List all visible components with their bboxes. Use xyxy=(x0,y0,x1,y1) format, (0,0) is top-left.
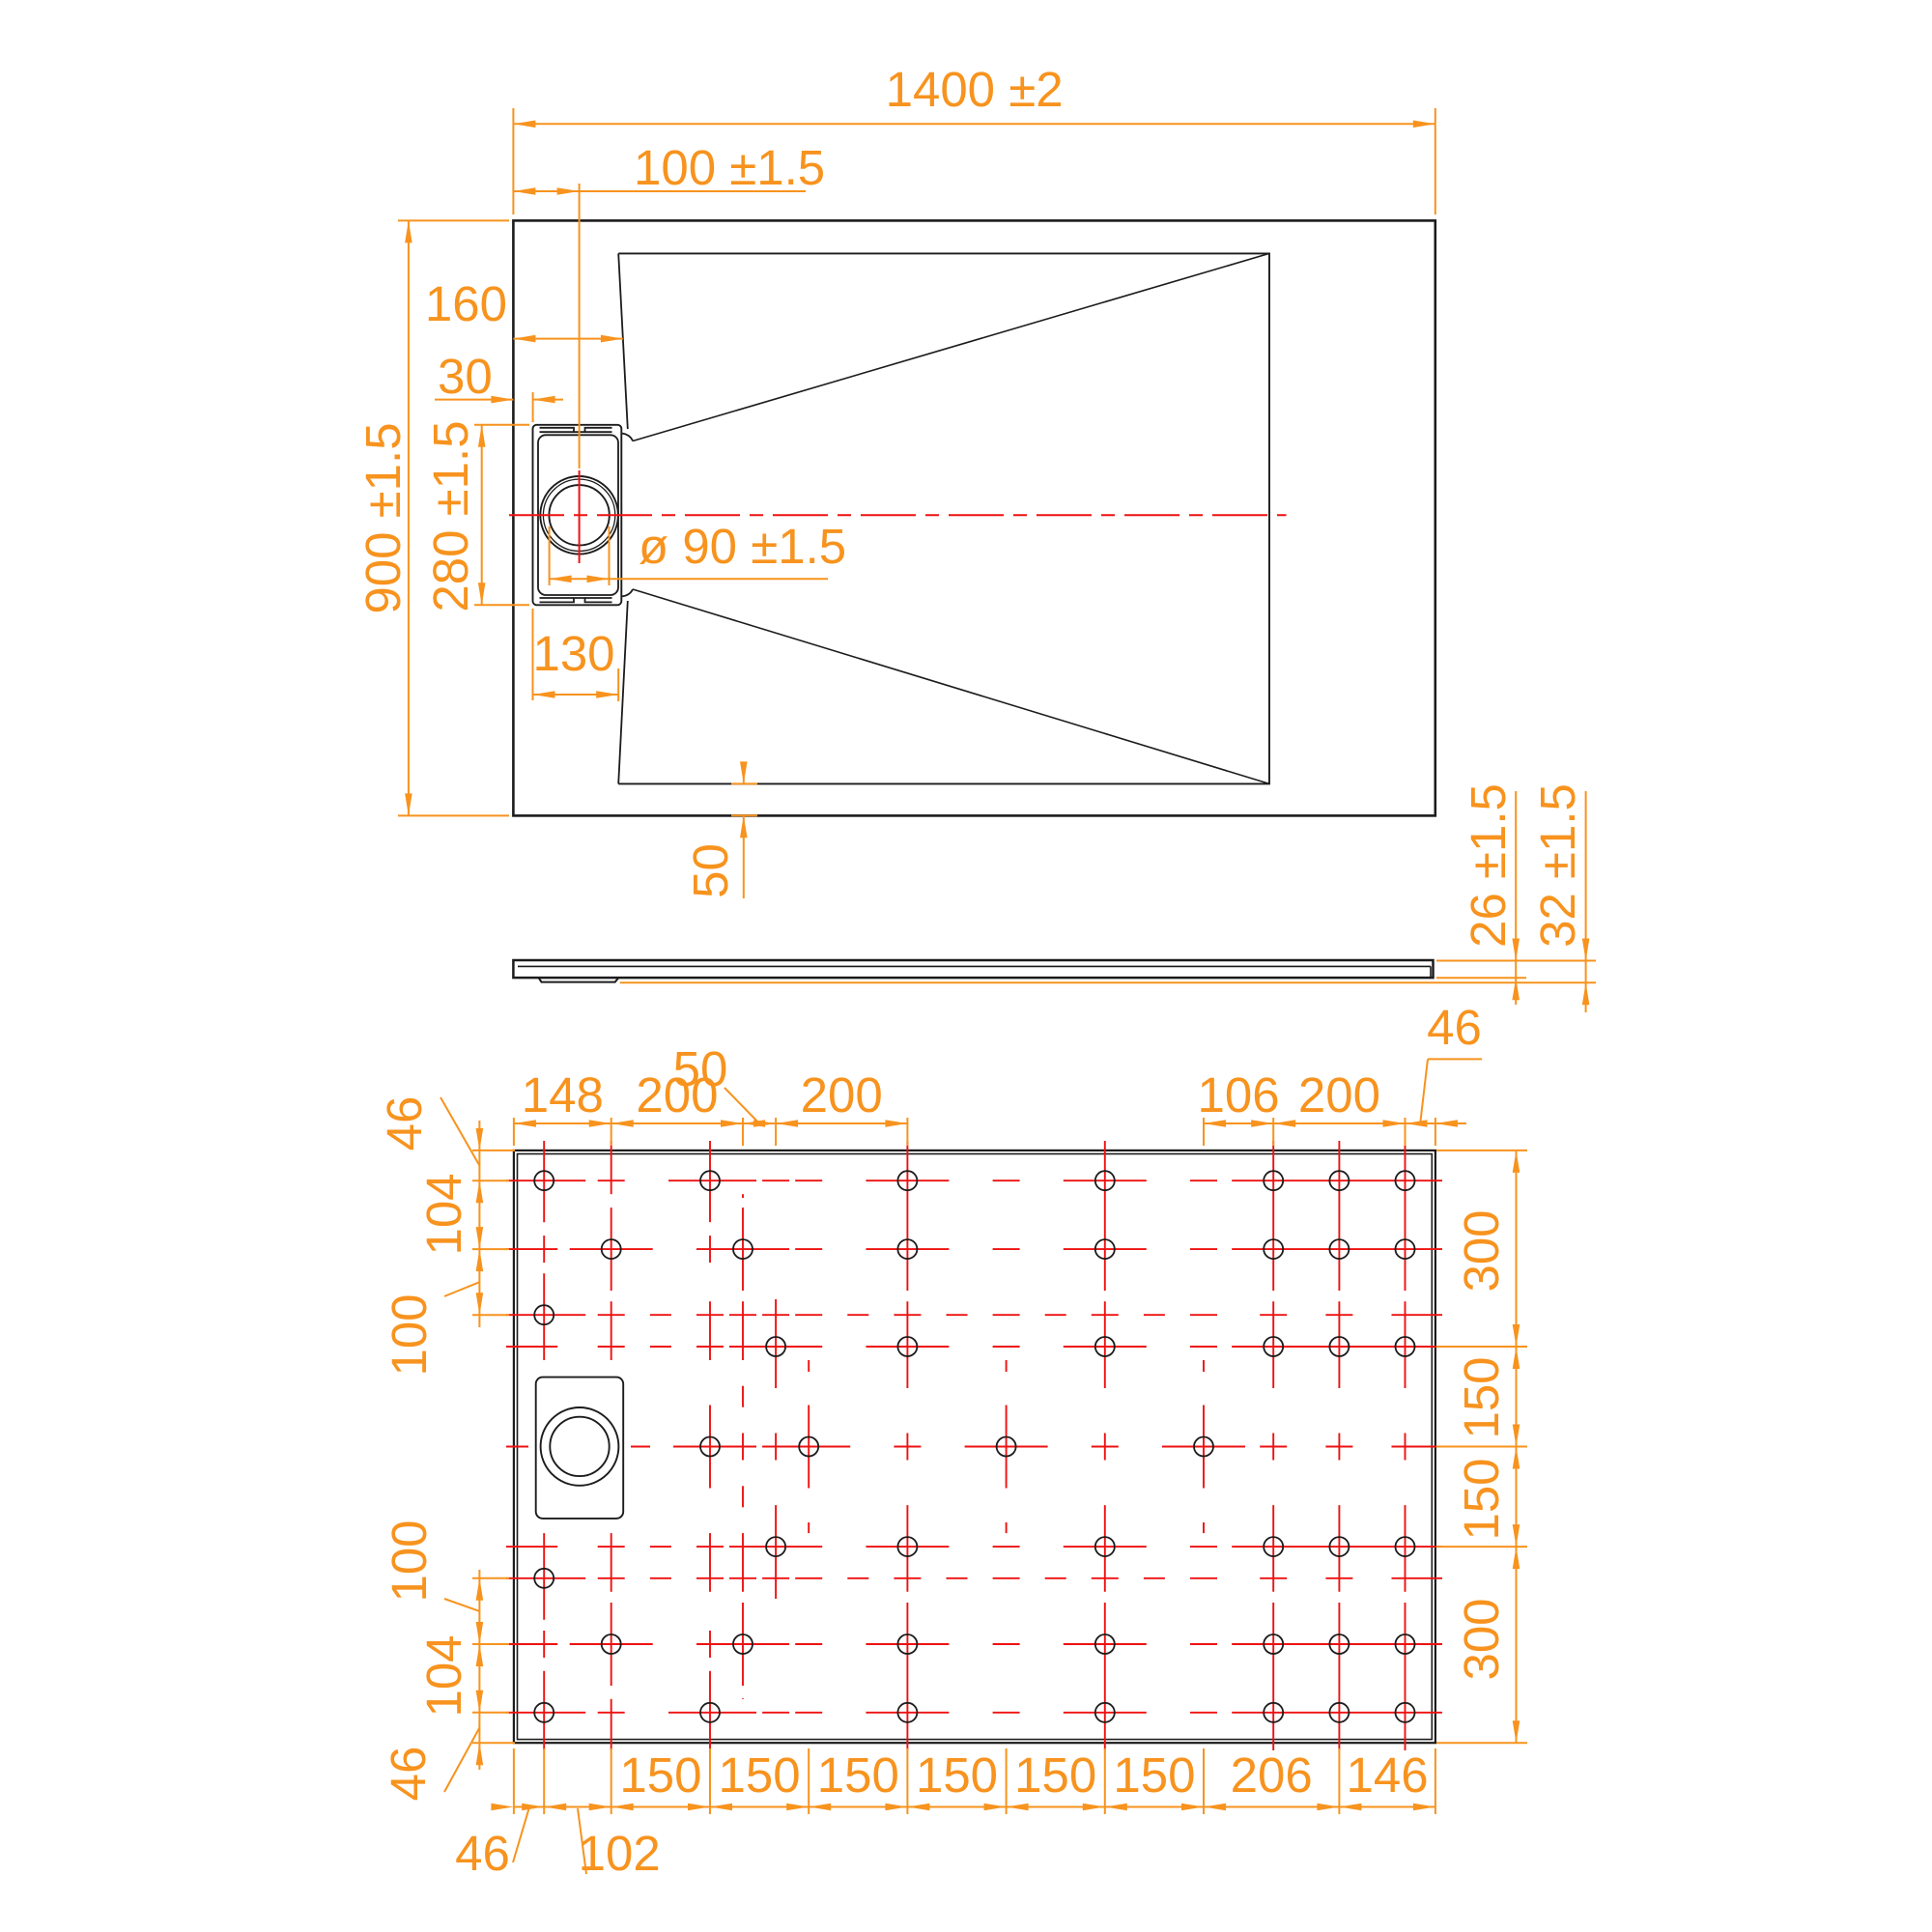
svg-text:104: 104 xyxy=(416,1634,471,1717)
svg-text:130: 130 xyxy=(532,626,614,681)
svg-text:150: 150 xyxy=(1113,1747,1195,1803)
svg-text:206: 206 xyxy=(1231,1747,1313,1803)
svg-text:100 ±1.5: 100 ±1.5 xyxy=(634,140,825,195)
svg-text:280 ±1.5: 280 ±1.5 xyxy=(423,420,478,611)
svg-text:46: 46 xyxy=(455,1826,510,1881)
svg-text:150: 150 xyxy=(916,1747,998,1803)
svg-text:26 ±1.5: 26 ±1.5 xyxy=(1461,783,1516,948)
svg-text:100: 100 xyxy=(382,1520,437,1602)
svg-text:106: 106 xyxy=(1198,1067,1280,1122)
svg-text:200: 200 xyxy=(801,1067,883,1122)
svg-text:200: 200 xyxy=(1298,1067,1380,1122)
svg-text:300: 300 xyxy=(1454,1598,1509,1680)
svg-text:900 ±1.5: 900 ±1.5 xyxy=(355,422,411,613)
svg-text:300: 300 xyxy=(1454,1209,1509,1292)
svg-text:46: 46 xyxy=(1427,1000,1482,1055)
svg-text:150: 150 xyxy=(1454,1356,1509,1438)
svg-text:150: 150 xyxy=(1454,1458,1509,1540)
svg-text:30: 30 xyxy=(438,349,493,404)
svg-text:150: 150 xyxy=(817,1747,899,1803)
svg-text:148: 148 xyxy=(522,1067,604,1122)
svg-text:104: 104 xyxy=(416,1173,471,1255)
svg-text:102: 102 xyxy=(579,1826,661,1881)
svg-text:46: 46 xyxy=(377,1096,432,1151)
svg-text:100: 100 xyxy=(382,1293,437,1376)
svg-text:150: 150 xyxy=(619,1747,701,1803)
svg-text:150: 150 xyxy=(719,1747,801,1803)
svg-text:50: 50 xyxy=(673,1041,728,1096)
svg-text:46: 46 xyxy=(381,1747,436,1802)
svg-text:1400 ±2: 1400 ±2 xyxy=(886,62,1064,117)
svg-text:32 ±1.5: 32 ±1.5 xyxy=(1530,783,1585,948)
svg-text:160: 160 xyxy=(425,276,507,331)
svg-text:150: 150 xyxy=(1014,1747,1096,1803)
svg-text:146: 146 xyxy=(1347,1747,1429,1803)
svg-text:50: 50 xyxy=(683,843,738,898)
svg-text:ø 90 ±1.5: ø 90 ±1.5 xyxy=(639,519,846,574)
